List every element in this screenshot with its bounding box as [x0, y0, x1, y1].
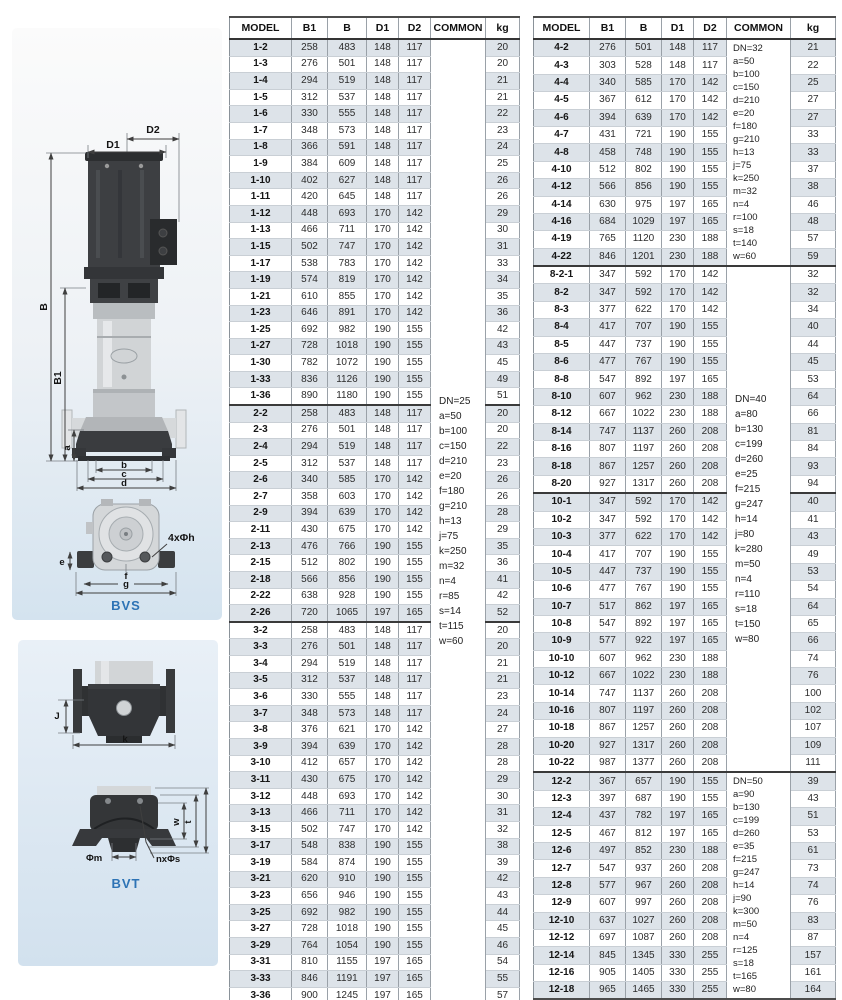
value-cell: 312: [292, 455, 328, 472]
table-row: 12-546781219716553: [534, 825, 836, 842]
value-cell: 155: [399, 938, 431, 955]
model-cell: 4-4: [534, 74, 590, 91]
value-cell: 810: [292, 954, 328, 971]
value-cell: 165: [399, 971, 431, 988]
value-cell: 1257: [626, 458, 662, 475]
value-cell: 707: [626, 546, 662, 563]
value-cell: 208: [694, 755, 727, 773]
value-cell: 190: [662, 354, 694, 371]
value-cell: 592: [626, 511, 662, 528]
model-cell: 10-9: [534, 633, 590, 650]
table-row: 10-147471137260208100: [534, 685, 836, 702]
value-cell: 117: [399, 672, 431, 689]
value-cell: 142: [694, 266, 727, 284]
common-dimensions-text: DN=32a=50b=100c=150d=210e=20f=180g=210h=…: [727, 42, 790, 263]
value-cell: 927: [590, 475, 626, 493]
dim-label-b1-height: B1: [52, 371, 64, 385]
model-cell: 1-30: [230, 355, 292, 372]
value-cell: 466: [292, 805, 328, 822]
value-cell: 802: [626, 161, 662, 178]
model-cell: 1-17: [230, 255, 292, 272]
value-cell: 1065: [328, 605, 367, 622]
model-cell: 12-10: [534, 912, 590, 929]
value-cell: 197: [662, 615, 694, 632]
model-cell: 1-36: [230, 388, 292, 405]
model-cell: 3-3: [230, 639, 292, 656]
value-cell: 891: [328, 305, 367, 322]
kg-cell: 107: [791, 720, 836, 737]
value-cell: 165: [399, 987, 431, 1000]
model-cell: 3-29: [230, 938, 292, 955]
value-cell: 367: [590, 92, 626, 109]
model-cell: 4-22: [534, 248, 590, 266]
value-cell: 627: [328, 172, 367, 189]
value-cell: 170: [367, 522, 399, 539]
value-cell: 639: [328, 738, 367, 755]
table-row: 8-2-1347592170142DN=40a=80b=130c=199d=26…: [534, 266, 836, 284]
kg-cell: 83: [791, 912, 836, 929]
value-cell: 260: [662, 423, 694, 440]
kg-cell: 57: [791, 231, 836, 248]
value-cell: 148: [367, 705, 399, 722]
value-cell: 190: [367, 572, 399, 589]
value-cell: 190: [367, 388, 399, 405]
model-cell: 8-8: [534, 371, 590, 388]
kg-cell: 22: [486, 439, 520, 456]
kg-cell: 43: [791, 528, 836, 545]
value-cell: 592: [626, 493, 662, 511]
model-cell: 10-22: [534, 755, 590, 773]
value-cell: 855: [328, 288, 367, 305]
kg-cell: 111: [791, 755, 836, 773]
value-cell: 260: [662, 895, 694, 912]
model-cell: 1-25: [230, 322, 292, 339]
value-cell: 197: [662, 825, 694, 842]
common-dimensions-text: DN=40a=80b=130c=199d=260e=25f=215g=247h=…: [727, 392, 790, 647]
header-b1: B1: [590, 17, 626, 39]
value-cell: 846: [590, 248, 626, 266]
table-row: 12-148451345330255157: [534, 947, 836, 964]
kg-cell: 46: [486, 938, 520, 955]
value-cell: 1072: [328, 355, 367, 372]
kg-cell: 157: [791, 947, 836, 964]
model-cell: 3-23: [230, 888, 292, 905]
value-cell: 856: [626, 179, 662, 196]
value-cell: 962: [626, 388, 662, 405]
kg-cell: 64: [791, 598, 836, 615]
kg-cell: 43: [486, 888, 520, 905]
value-cell: 170: [662, 511, 694, 528]
value-cell: 765: [590, 231, 626, 248]
model-cell: 8-14: [534, 423, 590, 440]
value-cell: 165: [694, 598, 727, 615]
value-cell: 190: [367, 555, 399, 572]
kg-cell: 46: [791, 196, 836, 213]
value-cell: 430: [292, 772, 328, 789]
value-cell: 142: [399, 522, 431, 539]
model-cell: 12-3: [534, 790, 590, 807]
value-cell: 165: [694, 825, 727, 842]
kg-cell: 29: [486, 522, 520, 539]
value-cell: 1126: [328, 371, 367, 388]
value-cell: 170: [367, 772, 399, 789]
value-cell: 737: [626, 563, 662, 580]
value-cell: 258: [292, 622, 328, 639]
value-cell: 347: [590, 266, 626, 284]
value-cell: 142: [399, 738, 431, 755]
value-cell: 1317: [626, 475, 662, 493]
model-cell: 3-11: [230, 772, 292, 789]
table-row: 10-544773719015553: [534, 563, 836, 580]
model-cell: 10-10: [534, 650, 590, 667]
header-b: B: [626, 17, 662, 39]
model-cell: 3-33: [230, 971, 292, 988]
value-cell: 711: [328, 805, 367, 822]
value-cell: 165: [399, 954, 431, 971]
value-cell: 142: [694, 74, 727, 91]
value-cell: 148: [367, 106, 399, 123]
kg-cell: 48: [791, 213, 836, 230]
model-cell: 10-4: [534, 546, 590, 563]
kg-cell: 81: [791, 423, 836, 440]
value-cell: 1180: [328, 388, 367, 405]
value-cell: 148: [367, 172, 399, 189]
value-cell: 747: [328, 239, 367, 256]
model-cell: 1-5: [230, 89, 292, 106]
value-cell: 148: [367, 622, 399, 639]
value-cell: 721: [626, 126, 662, 143]
kg-cell: 25: [791, 74, 836, 91]
table-row: 12-960799726020876: [534, 895, 836, 912]
value-cell: 155: [694, 563, 727, 580]
model-cell: 4-14: [534, 196, 590, 213]
value-cell: 190: [367, 322, 399, 339]
value-cell: 260: [662, 685, 694, 702]
dim-label-d: d: [121, 478, 127, 489]
value-cell: 190: [662, 179, 694, 196]
kg-cell: 22: [791, 57, 836, 74]
value-cell: 397: [590, 790, 626, 807]
value-cell: 609: [328, 156, 367, 173]
value-cell: 417: [590, 319, 626, 336]
table-row: 4-1051280219015537: [534, 161, 836, 178]
model-cell: 12-14: [534, 947, 590, 964]
value-cell: 190: [367, 904, 399, 921]
value-cell: 900: [292, 987, 328, 1000]
model-cell: 2-13: [230, 538, 292, 555]
value-cell: 1197: [626, 440, 662, 457]
model-cell: 10-6: [534, 581, 590, 598]
common-dimensions-cell: DN=50a=90b=130c=199d=260e=35f=215g=247h=…: [727, 772, 791, 999]
value-cell: 170: [367, 755, 399, 772]
value-cell: 142: [399, 272, 431, 289]
value-cell: 630: [590, 196, 626, 213]
value-cell: 197: [662, 598, 694, 615]
value-cell: 148: [367, 156, 399, 173]
value-cell: 802: [328, 555, 367, 572]
value-cell: 148: [367, 189, 399, 206]
table-row: 4-19765112023018857: [534, 231, 836, 248]
kg-cell: 52: [486, 605, 520, 622]
table-row: 8-441770719015540: [534, 319, 836, 336]
kg-cell: 100: [791, 685, 836, 702]
value-cell: 170: [662, 528, 694, 545]
value-cell: 230: [662, 231, 694, 248]
value-cell: 170: [367, 272, 399, 289]
model-cell: 4-6: [534, 109, 590, 126]
value-cell: 170: [662, 74, 694, 91]
value-cell: 155: [399, 838, 431, 855]
value-cell: 1155: [328, 954, 367, 971]
model-cell: 1-10: [230, 172, 292, 189]
value-cell: 190: [367, 355, 399, 372]
value-cell: 255: [694, 982, 727, 1000]
header-b: B: [328, 17, 367, 39]
kg-cell: 24: [486, 705, 520, 722]
value-cell: 170: [367, 288, 399, 305]
value-cell: 547: [590, 615, 626, 632]
value-cell: 260: [662, 702, 694, 719]
value-cell: 188: [694, 248, 727, 266]
kg-cell: 64: [791, 388, 836, 405]
table-row: 12-2367657190155DN=50a=90b=130c=199d=260…: [534, 772, 836, 790]
value-cell: 519: [328, 439, 367, 456]
value-cell: 208: [694, 860, 727, 877]
value-cell: 330: [662, 964, 694, 981]
value-cell: 197: [367, 971, 399, 988]
model-cell: 4-12: [534, 179, 590, 196]
kg-cell: 66: [791, 406, 836, 423]
value-cell: 466: [292, 222, 328, 239]
value-cell: 142: [399, 722, 431, 739]
value-cell: 190: [367, 338, 399, 355]
kg-cell: 20: [486, 56, 520, 73]
value-cell: 190: [662, 772, 694, 790]
table-row: 12-12697108726020887: [534, 929, 836, 946]
value-cell: 190: [367, 371, 399, 388]
value-cell: 117: [399, 39, 431, 56]
value-cell: 766: [328, 538, 367, 555]
value-cell: 687: [626, 790, 662, 807]
model-cell: 1-11: [230, 189, 292, 206]
value-cell: 728: [292, 338, 328, 355]
value-cell: 142: [399, 755, 431, 772]
dim-label-e: e: [59, 557, 64, 568]
value-cell: 347: [590, 493, 626, 511]
value-cell: 148: [367, 455, 399, 472]
value-cell: 528: [626, 57, 662, 74]
value-cell: 208: [694, 737, 727, 754]
value-cell: 693: [328, 788, 367, 805]
model-cell: 10-5: [534, 563, 590, 580]
value-cell: 142: [694, 301, 727, 318]
value-cell: 117: [399, 439, 431, 456]
model-cell: 4-16: [534, 213, 590, 230]
dim-label-bolt-holes: 4xΦh: [168, 532, 195, 544]
kg-cell: 49: [791, 546, 836, 563]
kg-cell: 24: [486, 139, 520, 156]
value-cell: 155: [694, 354, 727, 371]
kg-cell: 34: [791, 301, 836, 318]
value-cell: 555: [328, 689, 367, 706]
kg-cell: 66: [791, 633, 836, 650]
value-cell: 782: [626, 808, 662, 825]
kg-cell: 26: [486, 489, 520, 506]
kg-cell: 38: [791, 179, 836, 196]
value-cell: 197: [662, 371, 694, 388]
model-cell: 2-6: [230, 472, 292, 489]
model-cell: 3-36: [230, 987, 292, 1000]
table-row: 12-649785223018861: [534, 842, 836, 859]
model-cell: 2-5: [230, 455, 292, 472]
value-cell: 502: [292, 239, 328, 256]
value-cell: 117: [399, 172, 431, 189]
value-cell: 621: [328, 722, 367, 739]
value-cell: 208: [694, 475, 727, 493]
model-cell: 2-26: [230, 605, 292, 622]
value-cell: 584: [292, 855, 328, 872]
value-cell: 937: [626, 860, 662, 877]
value-cell: 603: [328, 489, 367, 506]
value-cell: 142: [399, 489, 431, 506]
kg-cell: 61: [791, 842, 836, 859]
table-row: 4-1463097519716546: [534, 196, 836, 213]
value-cell: 1054: [328, 938, 367, 955]
value-cell: 767: [626, 354, 662, 371]
kg-cell: 44: [486, 904, 520, 921]
value-cell: 117: [399, 73, 431, 90]
value-cell: 812: [626, 825, 662, 842]
value-cell: 188: [694, 650, 727, 667]
value-cell: 117: [399, 655, 431, 672]
model-cell: 1-3: [230, 56, 292, 73]
value-cell: 165: [694, 615, 727, 632]
model-cell: 4-10: [534, 161, 590, 178]
value-cell: 692: [292, 322, 328, 339]
value-cell: 255: [694, 964, 727, 981]
model-cell: 1-4: [230, 73, 292, 90]
kg-cell: 51: [791, 808, 836, 825]
kg-cell: 53: [791, 371, 836, 388]
value-cell: 117: [694, 39, 727, 57]
value-cell: 208: [694, 685, 727, 702]
value-cell: 260: [662, 737, 694, 754]
bvt-model-label: BVT: [112, 876, 141, 891]
value-cell: 566: [292, 572, 328, 589]
kg-cell: 28: [486, 505, 520, 522]
table-row: 12-754793726020873: [534, 860, 836, 877]
value-cell: 574: [292, 272, 328, 289]
value-cell: 975: [626, 196, 662, 213]
value-cell: 890: [292, 388, 328, 405]
kg-cell: 33: [486, 255, 520, 272]
value-cell: 208: [694, 877, 727, 894]
value-cell: 117: [399, 106, 431, 123]
value-cell: 142: [399, 255, 431, 272]
value-cell: 519: [328, 73, 367, 90]
value-cell: 188: [694, 668, 727, 685]
value-cell: 1257: [626, 720, 662, 737]
value-cell: 165: [694, 371, 727, 388]
value-cell: 1029: [626, 213, 662, 230]
model-cell: 3-21: [230, 871, 292, 888]
value-cell: 437: [590, 808, 626, 825]
value-cell: 142: [399, 239, 431, 256]
kg-cell: 30: [486, 222, 520, 239]
value-cell: 117: [399, 622, 431, 639]
kg-cell: 74: [791, 650, 836, 667]
table-row: 8-12667102223018866: [534, 406, 836, 423]
value-cell: 431: [590, 126, 626, 143]
value-cell: 1022: [626, 406, 662, 423]
model-cell: 8-2: [534, 284, 590, 301]
value-cell: 170: [367, 722, 399, 739]
kg-cell: 30: [486, 788, 520, 805]
table-row: 10-229871377260208111: [534, 755, 836, 773]
value-cell: 927: [590, 737, 626, 754]
value-cell: 807: [590, 702, 626, 719]
kg-cell: 21: [486, 672, 520, 689]
value-cell: 142: [399, 805, 431, 822]
model-cell: 8-6: [534, 354, 590, 371]
table-row: 10-751786219716564: [534, 598, 836, 615]
value-cell: 910: [328, 871, 367, 888]
value-cell: 155: [694, 790, 727, 807]
kg-cell: 21: [486, 89, 520, 106]
model-cell: 1-2: [230, 39, 292, 56]
value-cell: 501: [328, 56, 367, 73]
value-cell: 148: [662, 39, 694, 57]
value-cell: 117: [399, 455, 431, 472]
value-cell: 982: [328, 904, 367, 921]
model-cell: 2-15: [230, 555, 292, 572]
table-row: 8-14747113726020881: [534, 423, 836, 440]
value-cell: 675: [328, 522, 367, 539]
model-cell: 1-21: [230, 288, 292, 305]
model-cell: 3-31: [230, 954, 292, 971]
value-cell: 117: [399, 422, 431, 439]
value-cell: 693: [328, 205, 367, 222]
value-cell: 1027: [626, 912, 662, 929]
value-cell: 190: [662, 161, 694, 178]
model-cell: 8-4: [534, 319, 590, 336]
value-cell: 260: [662, 440, 694, 457]
value-cell: 155: [694, 126, 727, 143]
value-cell: 638: [292, 588, 328, 605]
value-cell: 148: [367, 139, 399, 156]
value-cell: 946: [328, 888, 367, 905]
table-header-row: MODEL B1 B D1 D2 COMMON kg: [230, 17, 520, 39]
model-cell: 3-7: [230, 705, 292, 722]
value-cell: 260: [662, 912, 694, 929]
model-cell: 8-16: [534, 440, 590, 457]
table-row: 4-845874819015533: [534, 144, 836, 161]
header-common: COMMON: [727, 17, 791, 39]
value-cell: 622: [626, 528, 662, 545]
model-cell: 3-17: [230, 838, 292, 855]
value-cell: 230: [662, 406, 694, 423]
value-cell: 340: [590, 74, 626, 91]
value-cell: 592: [626, 266, 662, 284]
table-row: 10-647776719015554: [534, 581, 836, 598]
table-row: 10-441770719015549: [534, 546, 836, 563]
common-dimensions-cell: DN=32a=50b=100c=150d=210e=20f=180g=210h=…: [727, 39, 791, 266]
header-common: COMMON: [431, 17, 486, 39]
value-cell: 620: [292, 871, 328, 888]
value-cell: 585: [626, 74, 662, 91]
bvs-model-label: BVS: [111, 598, 141, 613]
kg-cell: 39: [486, 855, 520, 872]
